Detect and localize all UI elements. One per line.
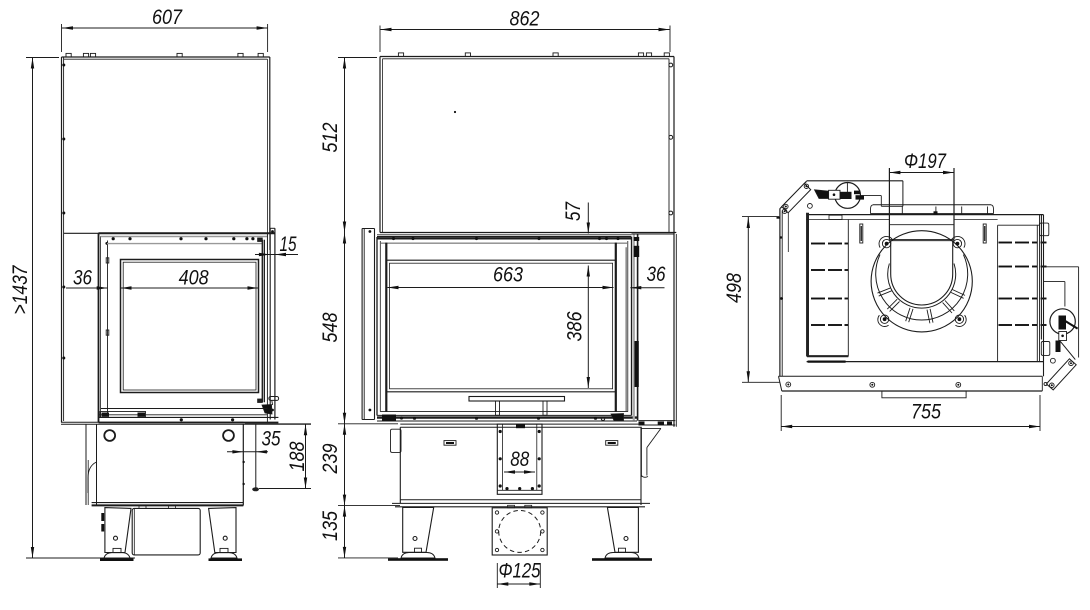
svg-text:498: 498 [723,273,746,303]
svg-text:57: 57 [562,201,585,221]
svg-text:35: 35 [262,428,281,451]
svg-text:862: 862 [510,8,540,31]
svg-text:188: 188 [286,441,309,471]
svg-text:607: 607 [152,6,183,29]
svg-text:548: 548 [319,312,342,342]
svg-text:15: 15 [280,233,297,256]
svg-text:239: 239 [319,443,342,474]
svg-text:755: 755 [911,401,941,424]
svg-text:408: 408 [179,267,209,290]
svg-text:663: 663 [493,264,523,287]
svg-text:36: 36 [647,263,666,286]
svg-text:Φ197: Φ197 [904,150,947,173]
svg-text:Φ125: Φ125 [499,560,541,583]
svg-text:386: 386 [564,311,587,341]
svg-text:36: 36 [73,267,92,290]
svg-text:135: 135 [319,511,342,541]
svg-text:>1437: >1437 [9,264,32,314]
svg-text:88: 88 [510,448,529,471]
svg-text:512: 512 [319,122,342,152]
